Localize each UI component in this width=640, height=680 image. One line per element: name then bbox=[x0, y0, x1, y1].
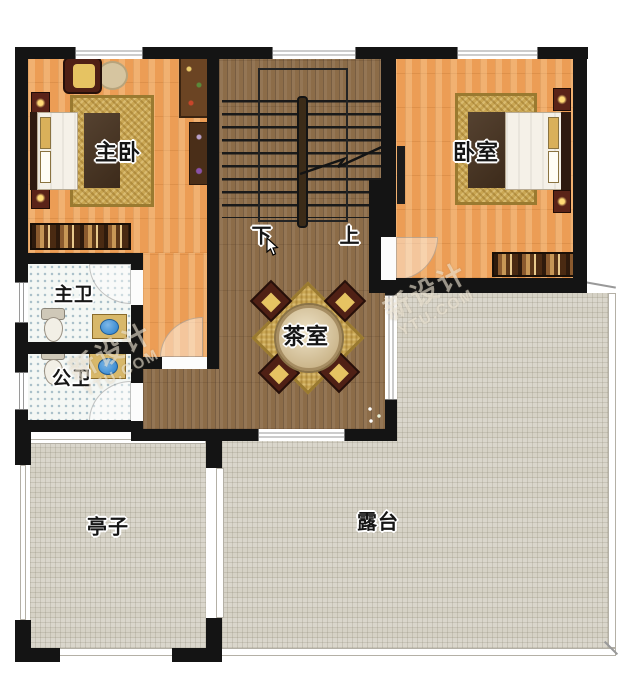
room-label-tea-room: 茶室 bbox=[283, 319, 329, 351]
pavilion-left-border bbox=[20, 465, 26, 620]
left-wall-upper bbox=[15, 47, 28, 282]
pavilion-column-bottom-left-h bbox=[15, 648, 60, 662]
bath-top-wall bbox=[15, 253, 143, 264]
pavilion-column-top-left bbox=[15, 430, 31, 465]
bath-right-wall-b bbox=[131, 305, 143, 383]
pavilion-floor bbox=[30, 443, 206, 648]
room-label-public-bath: 公卫 bbox=[52, 364, 92, 391]
bedroom-window bbox=[457, 47, 538, 59]
public-bath-door-gap bbox=[131, 383, 143, 421]
bedroom-bed bbox=[505, 112, 571, 190]
room-label-terrace: 露台 bbox=[357, 506, 399, 535]
bedroom-nightstand-bottom bbox=[553, 190, 571, 213]
pavilion-terrace-divider bbox=[216, 468, 224, 618]
bath-right-wall-a bbox=[131, 253, 143, 270]
stair-up-label: 上 bbox=[340, 220, 361, 249]
master-wardrobe bbox=[30, 223, 131, 250]
sink-basin bbox=[100, 319, 119, 335]
tea-room-bottom-wall-left bbox=[131, 429, 258, 441]
master-nightstand-bottom bbox=[31, 187, 50, 209]
room-label-bedroom: 卧室 bbox=[453, 135, 499, 167]
floorplan-canvas: 主卧 卧室 主卫 公卫 茶室 亭子 露台 下 上 新设计 YTU.COM 新设计… bbox=[0, 0, 640, 680]
stair-right-wall bbox=[381, 47, 396, 237]
bedroom-dresser bbox=[492, 252, 580, 277]
bath-bottom-wall bbox=[15, 420, 143, 432]
toilet-bowl bbox=[44, 317, 63, 342]
master-desk bbox=[189, 122, 208, 185]
room-label-pavilion: 亭子 bbox=[87, 511, 129, 540]
bedroom-bed-pillow-gold bbox=[548, 117, 559, 149]
cursor-icon bbox=[266, 237, 279, 256]
bath-divider-wall bbox=[15, 342, 131, 354]
bedroom-door-gap bbox=[381, 237, 396, 280]
pavilion-column-top-right bbox=[206, 438, 222, 468]
bedroom-nightstand-top bbox=[553, 88, 571, 111]
right-wall bbox=[573, 47, 587, 293]
public-bath-sink bbox=[89, 353, 126, 379]
master-side-cabinet bbox=[179, 57, 209, 118]
terrace-top-edge-line bbox=[586, 281, 616, 288]
stair-right-wall-stub bbox=[369, 180, 381, 293]
bedroom-bed-pillow-white bbox=[548, 151, 559, 183]
sink-basin bbox=[98, 358, 118, 375]
public-bath-window bbox=[15, 372, 28, 410]
stair-break-line bbox=[298, 142, 388, 176]
corridor-door-gap bbox=[162, 357, 207, 369]
master-bed-pillow-white bbox=[40, 151, 51, 183]
master-bath-door-gap bbox=[131, 270, 143, 305]
pavilion-column-bottom-right-h bbox=[172, 648, 222, 662]
tea-room-east-window bbox=[385, 295, 397, 400]
stair-hall-window bbox=[272, 47, 356, 59]
terrace-floor-bottom bbox=[222, 441, 397, 648]
tea-room-right-wall-a bbox=[385, 280, 397, 295]
stair-left-wall bbox=[207, 47, 219, 369]
corridor-door-wall bbox=[143, 357, 162, 369]
tea-room-right-wall-b bbox=[385, 400, 397, 441]
terrace-right-border bbox=[608, 293, 616, 648]
master-bed-pillow-gold bbox=[40, 117, 51, 149]
chair-cushion bbox=[269, 365, 289, 385]
room-label-master-bath: 主卫 bbox=[54, 280, 94, 307]
tea-room-left-floor bbox=[143, 369, 219, 429]
bedroom-bed-headboard bbox=[561, 112, 571, 190]
tea-room-south-window bbox=[258, 429, 345, 441]
terrace-floor-right bbox=[397, 293, 608, 648]
room-label-master-bedroom: 主卧 bbox=[95, 135, 141, 167]
master-bedroom-window bbox=[75, 47, 143, 59]
chair-cushion bbox=[261, 293, 281, 313]
master-bed bbox=[30, 112, 78, 190]
chair-cushion bbox=[329, 364, 349, 384]
bedroom-bottom-wall bbox=[390, 278, 587, 293]
master-armchair bbox=[63, 57, 102, 94]
armchair-cushion bbox=[73, 64, 95, 88]
bedroom-tv bbox=[397, 146, 405, 204]
master-nightstand-top bbox=[31, 92, 50, 114]
chair-cushion bbox=[335, 293, 355, 313]
master-bath-toilet bbox=[41, 308, 65, 342]
master-bath-sink bbox=[92, 314, 127, 339]
master-bath-window bbox=[15, 282, 28, 323]
terrace-bottom-border bbox=[28, 648, 616, 656]
